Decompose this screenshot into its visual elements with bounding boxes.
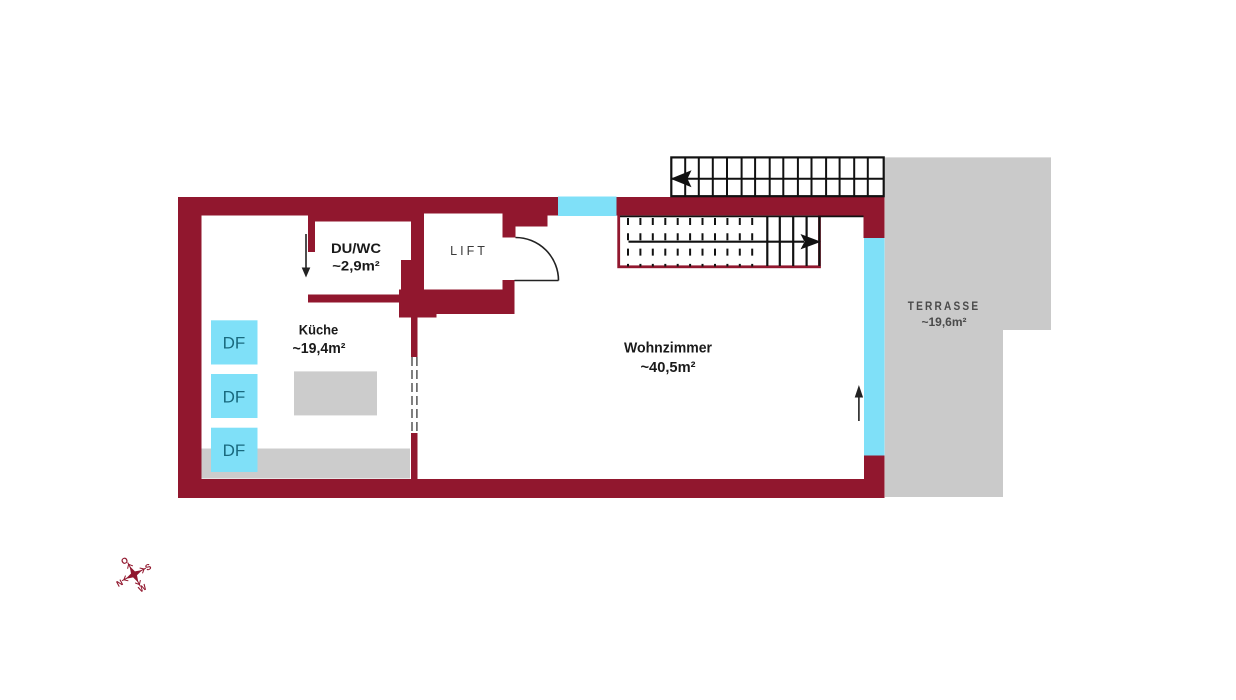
svg-text:~2,9m²: ~2,9m²	[332, 259, 380, 274]
svg-text:LIFT: LIFT	[450, 244, 488, 258]
svg-text:DU/WC: DU/WC	[331, 241, 381, 256]
svg-text:DF: DF	[223, 441, 246, 460]
svg-text:N: N	[115, 577, 125, 589]
svg-text:DF: DF	[223, 334, 246, 353]
svg-text:S: S	[143, 561, 153, 573]
svg-text:TERRASSE: TERRASSE	[908, 301, 981, 313]
svg-text:~19,6m²: ~19,6m²	[921, 315, 966, 329]
svg-text:~19,4m²: ~19,4m²	[293, 341, 346, 357]
svg-text:Wohnzimmer: Wohnzimmer	[624, 339, 712, 356]
svg-text:DF: DF	[223, 387, 246, 406]
svg-text:~40,5m²: ~40,5m²	[641, 359, 696, 376]
svg-text:Küche: Küche	[299, 322, 339, 338]
